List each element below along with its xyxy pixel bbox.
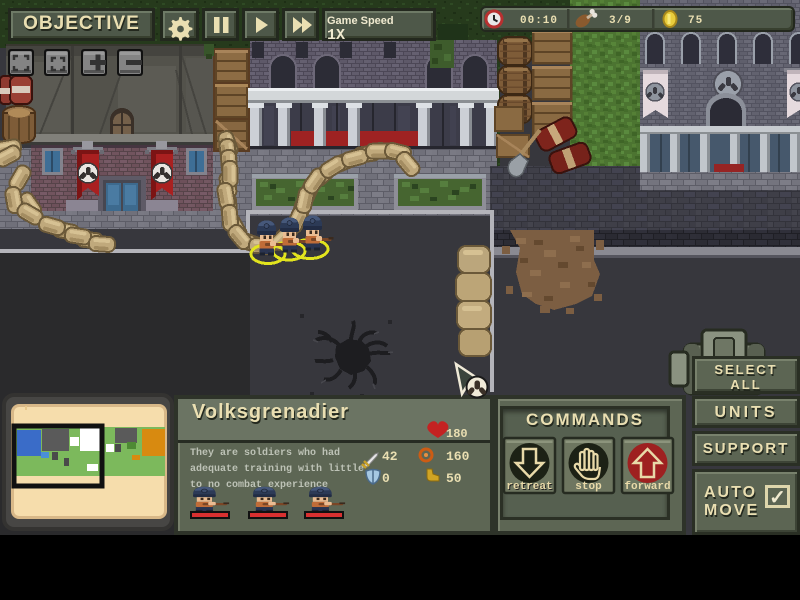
svg-text:adequate training with little: adequate training with little [190, 463, 364, 475]
svg-text:160: 160 [446, 449, 470, 464]
svg-text:0: 0 [382, 471, 390, 486]
svg-text:1X: 1X [327, 27, 345, 41]
svg-text:00:10: 00:10 [520, 15, 558, 27]
svg-text:forward: forward [624, 481, 670, 493]
svg-text:Game Speed: Game Speed [327, 15, 394, 27]
svg-text:180: 180 [446, 427, 468, 441]
svg-text:50: 50 [446, 471, 462, 486]
svg-text:42: 42 [382, 449, 398, 464]
svg-text:They are soldiers who had: They are soldiers who had [190, 447, 340, 459]
svg-text:retreat: retreat [506, 481, 552, 493]
svg-text:stop: stop [575, 481, 602, 493]
svg-text:75: 75 [688, 15, 703, 27]
svg-text:3/9: 3/9 [609, 15, 632, 27]
